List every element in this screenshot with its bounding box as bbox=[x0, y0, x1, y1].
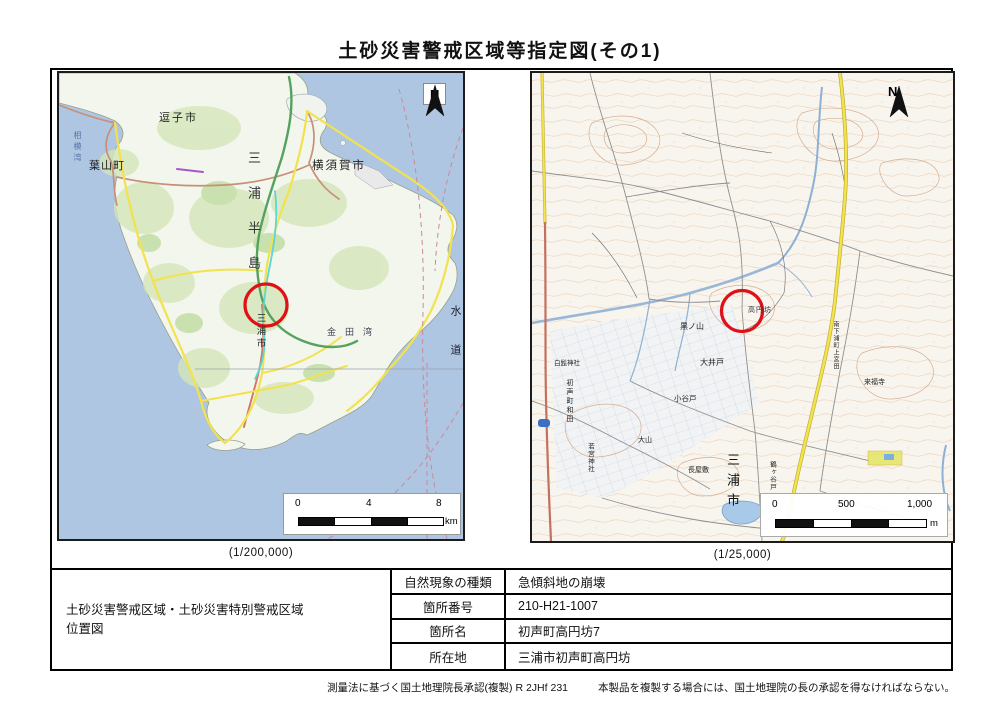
location-map: 相模湾 逗子市 葉山町 横須賀市 三浦半島 三浦市 金田湾 水道 N 0 4 8… bbox=[57, 71, 465, 541]
table-label-location: 所在地 bbox=[392, 644, 506, 669]
scale-tick-0: 0 bbox=[295, 498, 301, 509]
position-map-title-line2: 位置図 bbox=[66, 620, 388, 639]
footer-note: 測量法に基づく国土地理院長承認(複製) R 2JHf 231本製品を複製する場合… bbox=[327, 680, 955, 695]
scale-bar-strip bbox=[775, 519, 927, 528]
label-oido: 大井戸 bbox=[700, 359, 724, 367]
label-minamishitaura: 南下浦町上宮田 bbox=[832, 321, 838, 370]
document-frame: 相模湾 逗子市 葉山町 横須賀市 三浦半島 三浦市 金田湾 水道 N 0 4 8… bbox=[50, 68, 953, 671]
north-arrow: N bbox=[423, 83, 446, 105]
table-label-phenomenon: 自然現象の種類 bbox=[392, 570, 506, 595]
table-value-site-name: 初声町高円坊7 bbox=[506, 620, 951, 645]
label-nagayashiki: 長屋敷 bbox=[688, 467, 709, 474]
label-miura-city: 三浦市 bbox=[255, 313, 265, 351]
label-kuronoyama: 黒ノ山 bbox=[680, 323, 704, 331]
table-label-site-number: 箇所番号 bbox=[392, 595, 506, 620]
label-shirahige-jinja: 白髭神社 bbox=[554, 361, 580, 368]
detail-map-scale-caption: (1/25,000) bbox=[530, 549, 955, 561]
position-map-title: 土砂災害警戒区域・土砂災害特別警戒区域 位置図 bbox=[52, 570, 388, 669]
north-arrow: N bbox=[888, 85, 897, 99]
builtup-patch bbox=[868, 451, 902, 465]
label-ooyama: 大山 bbox=[638, 437, 652, 444]
north-arrow-icon bbox=[424, 84, 446, 118]
scale-bar: 0 500 1,000 m bbox=[760, 493, 948, 537]
page-title: 土砂災害警戒区域等指定図(その1) bbox=[0, 36, 1000, 63]
location-map-scale-caption: (1/200,000) bbox=[57, 547, 465, 559]
scale-tick-2: 1,000 bbox=[907, 499, 932, 510]
label-miura-peninsula: 三浦半島 bbox=[247, 151, 260, 291]
label-hassemachi-wada: 初声町和田 bbox=[566, 379, 573, 424]
label-miura-city: 三浦市 bbox=[726, 453, 739, 513]
scale-bar: 0 4 8 km bbox=[283, 493, 461, 535]
scale-unit: m bbox=[930, 518, 938, 529]
label-raifukuji: 来福寺 bbox=[864, 379, 885, 386]
scale-bar-strip bbox=[298, 517, 444, 526]
label-yokosuka-city: 横須賀市 bbox=[312, 161, 366, 173]
scale-tick-1: 4 bbox=[366, 498, 372, 509]
site-info-table: 自然現象の種類 急傾斜地の崩壊 箇所番号 210-H21-1007 箇所名 初声… bbox=[390, 570, 951, 669]
north-arrow-icon bbox=[888, 85, 910, 119]
table-value-phenomenon: 急傾斜地の崩壊 bbox=[506, 570, 951, 595]
location-map-canvas bbox=[59, 73, 463, 539]
label-kouenbou: 高円坊 bbox=[748, 307, 772, 314]
footer-approval-text: 測量法に基づく国土地理院長承認(複製) R 2JHf 231 bbox=[327, 682, 568, 694]
scale-tick-0: 0 bbox=[772, 499, 778, 510]
scale-unit: km bbox=[445, 516, 458, 527]
label-wakamiya-jinja: 若宮神社 bbox=[586, 443, 593, 473]
position-map-title-line1: 土砂災害警戒区域・土砂災害特別警戒区域 bbox=[66, 601, 388, 620]
label-zushi-city: 逗子市 bbox=[159, 113, 198, 124]
label-tsurugayato: 鶴ヶ谷戸 bbox=[768, 461, 775, 491]
table-label-site-name: 箇所名 bbox=[392, 620, 506, 645]
detail-map-canvas bbox=[532, 73, 953, 541]
scale-tick-2: 8 bbox=[436, 498, 442, 509]
scale-tick-1: 500 bbox=[838, 499, 855, 510]
route-shield bbox=[538, 419, 550, 427]
label-sagami-bay: 相模湾 bbox=[73, 131, 81, 164]
label-kaneda-bay: 金田湾 bbox=[327, 328, 381, 337]
label-koyato: 小谷戸 bbox=[674, 395, 697, 403]
detail-map: 高円坊 黒ノ山 大井戸 小谷戸 白髭神社 初声町和田 若宮神社 三浦市 長屋敷 … bbox=[530, 71, 955, 543]
label-uraga-suido: 水道 bbox=[449, 305, 460, 383]
label-hayama-town: 葉山町 bbox=[89, 161, 125, 172]
table-value-location: 三浦市初声町高円坊 bbox=[506, 644, 951, 669]
table-value-site-number: 210-H21-1007 bbox=[506, 595, 951, 620]
footer-notice-text: 本製品を複製する場合には、国土地理院の長の承認を得なければならない。 bbox=[598, 682, 955, 694]
